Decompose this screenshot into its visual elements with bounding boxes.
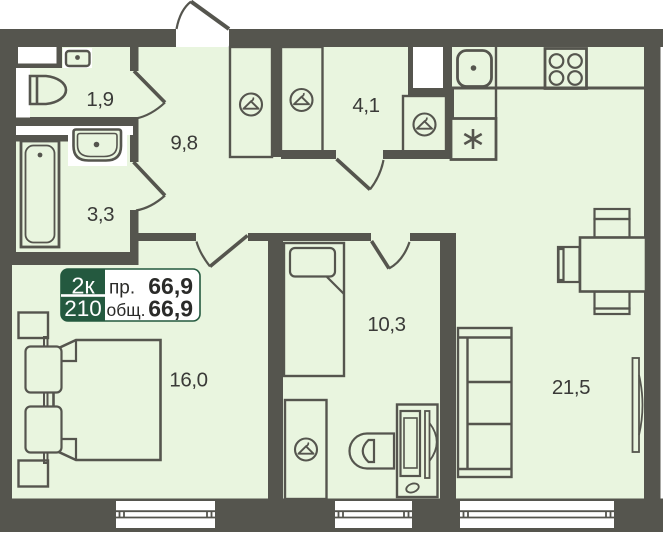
svg-text:2к: 2к (71, 273, 95, 299)
svg-text:10,3: 10,3 (367, 313, 405, 336)
svg-text:21,5: 21,5 (552, 376, 590, 399)
svg-text:пр.: пр. (109, 278, 135, 299)
svg-text:9,8: 9,8 (170, 132, 197, 155)
svg-text:общ.: общ. (107, 300, 146, 320)
svg-text:16,0: 16,0 (169, 369, 207, 392)
svg-text:66,9: 66,9 (148, 296, 193, 322)
svg-text:3,3: 3,3 (87, 203, 114, 226)
svg-text:210: 210 (64, 296, 102, 321)
svg-text:1,9: 1,9 (86, 88, 113, 111)
svg-text:4,1: 4,1 (352, 94, 379, 117)
